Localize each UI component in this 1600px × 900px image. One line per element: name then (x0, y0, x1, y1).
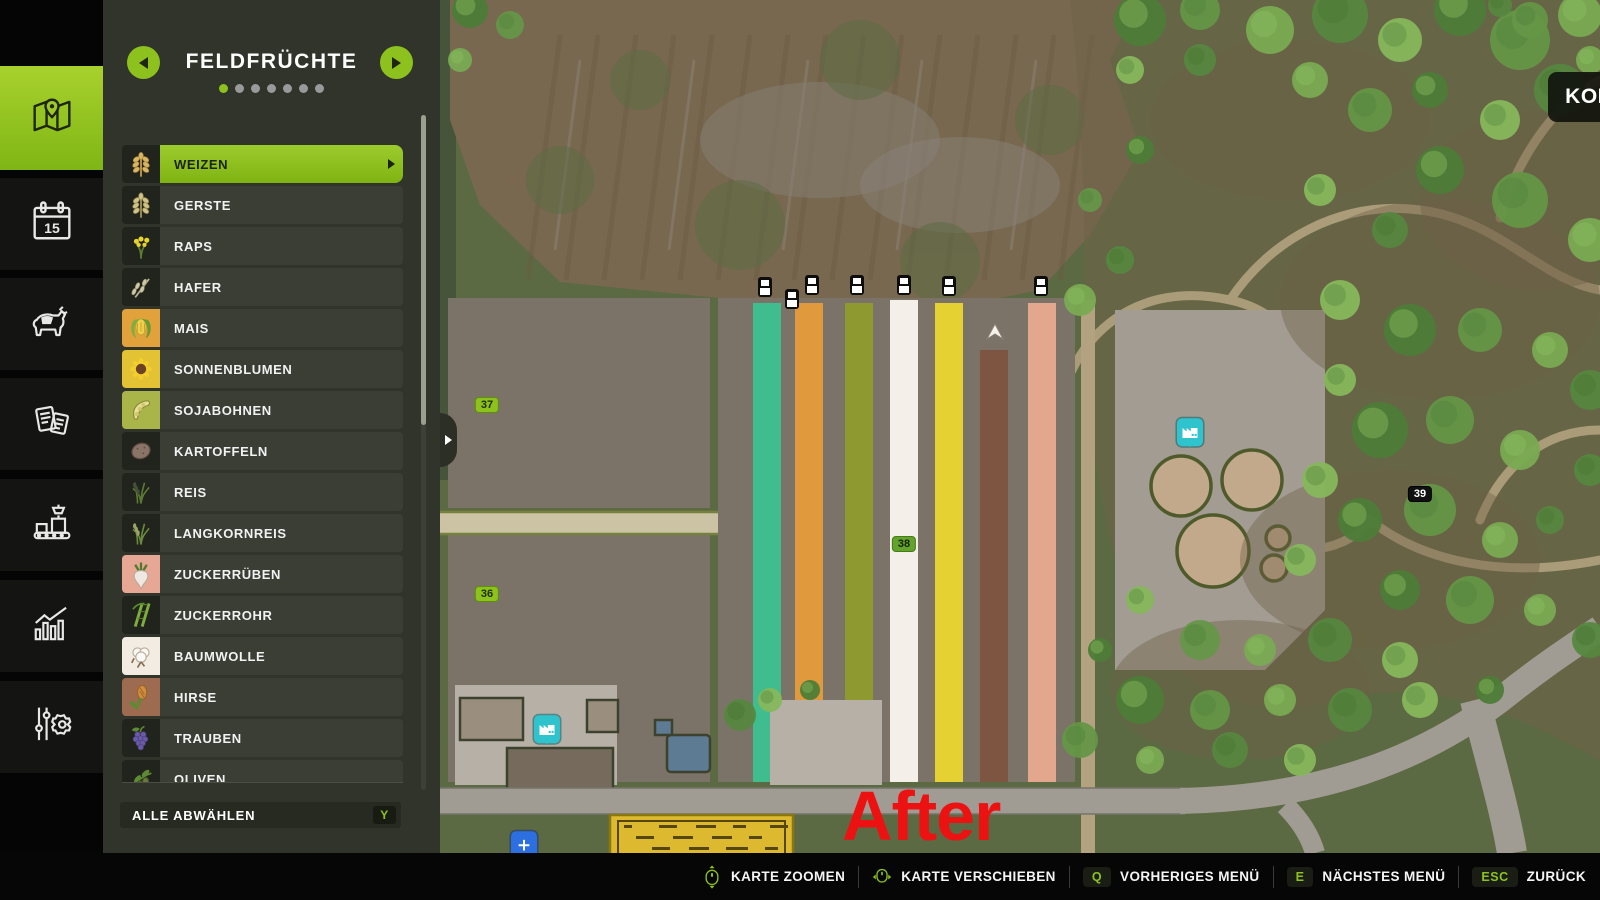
map-point-icon[interactable] (511, 831, 537, 853)
crop-item-hirse[interactable]: HIRSE (122, 678, 403, 716)
vehicle-marker (758, 277, 772, 297)
production-point-icon[interactable] (534, 715, 560, 743)
crop-item-label: ZUCKERROHR (160, 596, 403, 634)
chevron-right-icon (445, 435, 452, 445)
crop-item-label: ZUCKERRÜBEN (160, 555, 403, 593)
potato-icon (122, 432, 160, 470)
page-dot (251, 84, 260, 93)
vehicle-marker (805, 275, 819, 295)
oat-icon (122, 268, 160, 306)
crop-item-label: HIRSE (160, 678, 403, 716)
page-dot (235, 84, 244, 93)
production-icon (26, 497, 78, 554)
after-annotation: After (842, 781, 1000, 851)
soybean-icon (122, 391, 160, 429)
crop-item-label: REIS (160, 473, 403, 511)
page-dot (283, 84, 292, 93)
crop-item-oliven[interactable]: OLIVEN (122, 760, 403, 783)
map-canvas[interactable]: KONTOSTAND: 1.000.000 € 37363839 (440, 0, 1600, 853)
crop-item-label: SOJABOHNEN (160, 391, 403, 429)
deselect-all-label: ALLE ABWÄHLEN (132, 808, 255, 823)
crop-item-reis[interactable]: REIS (122, 473, 403, 511)
divider (1069, 866, 1070, 888)
olive-icon (122, 760, 160, 783)
crop-item-label: OLIVEN (160, 760, 403, 783)
key-hint-q: Q (1083, 867, 1111, 887)
hotbar-item-label: ZURÜCK (1527, 869, 1586, 884)
crop-item-baumwolle[interactable]: BAUMWOLLE (122, 637, 403, 675)
crop-item-zuckerr-ben[interactable]: ZUCKERRÜBEN (122, 555, 403, 593)
crop-item-raps[interactable]: RAPS (122, 227, 403, 265)
sidebar-item-animals[interactable] (0, 278, 103, 370)
crop-item-label: LANGKORNREIS (160, 514, 403, 552)
production-point-icon[interactable] (1177, 418, 1203, 446)
scrollbar-track[interactable] (421, 115, 426, 790)
crop-item-label: KARTOFFELN (160, 432, 403, 470)
canola-icon (122, 227, 160, 265)
hotbar-item-label: KARTE VERSCHIEBEN (901, 869, 1056, 884)
crop-item-sonnenblumen[interactable]: SONNENBLUMEN (122, 350, 403, 388)
divider (1458, 866, 1459, 888)
sidebar-item-map[interactable] (0, 66, 103, 170)
sidebar-item-settings[interactable] (0, 681, 103, 773)
crop-item-label: RAPS (160, 227, 403, 265)
game-screen: KONTOSTAND: 1.000.000 € 37363839 After 1… (0, 0, 1600, 900)
mouse-scroll-icon (702, 864, 722, 890)
page-dot (299, 84, 308, 93)
sidebar-item-statistics[interactable] (0, 580, 103, 672)
key-hint-esc: ESC (1472, 867, 1517, 887)
hotbar-item-karte-zoomen[interactable]: KARTE ZOOMEN (702, 864, 845, 890)
hotbar-item-karte-verschieben[interactable]: KARTE VERSCHIEBEN (872, 864, 1056, 890)
vehicle-marker (942, 276, 956, 296)
hotbar-item-n-chstes-men-[interactable]: ENÄCHSTES MENÜ (1287, 867, 1446, 887)
field-number-badge[interactable]: 39 (1408, 486, 1432, 502)
calendar-icon: 15 (26, 196, 78, 253)
animals-icon (26, 296, 78, 353)
svg-text:15: 15 (44, 219, 60, 235)
settings-icon (26, 699, 78, 756)
crop-item-hafer[interactable]: HAFER (122, 268, 403, 306)
cotton-icon (122, 637, 160, 675)
page-dot (219, 84, 228, 93)
wheat-icon (122, 145, 160, 183)
hotbar-item-label: KARTE ZOOMEN (731, 869, 845, 884)
sidebar-item-contracts[interactable] (0, 378, 103, 470)
crop-item-langkornreis[interactable]: LANGKORNREIS (122, 514, 403, 552)
panel-title: FELDFRÜCHTE (103, 50, 440, 74)
divider (858, 866, 859, 888)
crop-item-mais[interactable]: MAIS (122, 309, 403, 347)
crop-item-label: BAUMWOLLE (160, 637, 403, 675)
field-number-badge[interactable]: 36 (475, 586, 499, 602)
hotbar-item-label: NÄCHSTES MENÜ (1322, 869, 1445, 884)
key-hint-e: E (1287, 867, 1314, 887)
crop-item-zuckerrohr[interactable]: ZUCKERROHR (122, 596, 403, 634)
control-hints-bar: KARTE ZOOMENKARTE VERSCHIEBENQVORHERIGES… (0, 853, 1600, 900)
hotbar-item-zur-ck[interactable]: ESCZURÜCK (1472, 867, 1586, 887)
balance-label: KONTOSTAND: (1565, 85, 1600, 109)
deselect-all-button[interactable]: ALLE ABWÄHLEN Y (120, 802, 401, 828)
main-menu-sidebar: 15 (0, 0, 103, 853)
crop-item-trauben[interactable]: TRAUBEN (122, 719, 403, 757)
crop-item-sojabohnen[interactable]: SOJABOHNEN (122, 391, 403, 429)
chevron-right-icon (388, 159, 395, 169)
mouse-drag-icon (872, 864, 892, 890)
divider (1273, 866, 1274, 888)
page-dots (103, 84, 440, 93)
key-hint-y: Y (373, 806, 396, 824)
map-icon (26, 90, 78, 147)
crop-item-gerste[interactable]: GERSTE (122, 186, 403, 224)
balance-badge: KONTOSTAND: 1.000.000 € (1548, 72, 1600, 122)
grapes-icon (122, 719, 160, 757)
statistics-icon (26, 598, 78, 655)
hotbar-item-vorheriges-men-[interactable]: QVORHERIGES MENÜ (1083, 867, 1260, 887)
sugar-beet-icon (122, 555, 160, 593)
crops-panel: FELDFRÜCHTE WEIZENGERSTERAPSHAFERMAISSON… (103, 0, 440, 853)
scrollbar-thumb[interactable] (421, 115, 426, 425)
crop-item-label: HAFER (160, 268, 403, 306)
barley-icon (122, 186, 160, 224)
vehicle-marker (1034, 276, 1048, 296)
contracts-icon (26, 396, 78, 453)
crop-item-kartoffeln[interactable]: KARTOFFELN (122, 432, 403, 470)
field-number-badge[interactable]: 38 (892, 536, 916, 552)
crop-item-label: TRAUBEN (160, 719, 403, 757)
vehicle-marker (897, 275, 911, 295)
millet-icon (122, 678, 160, 716)
sidebar-item-production[interactable] (0, 479, 103, 571)
field-number-badge[interactable]: 37 (475, 397, 499, 413)
long-grain-rice-icon (122, 514, 160, 552)
map-artwork (440, 0, 1600, 853)
corn-icon (122, 309, 160, 347)
crop-item-label: MAIS (160, 309, 403, 347)
sunflower-icon (122, 350, 160, 388)
page-dot (267, 84, 276, 93)
page-dot (315, 84, 324, 93)
panel-collapse-tab[interactable] (440, 413, 457, 467)
crop-list: WEIZENGERSTERAPSHAFERMAISSONNENBLUMENSOJ… (122, 145, 403, 783)
hotbar-item-label: VORHERIGES MENÜ (1120, 869, 1260, 884)
crop-item-label: GERSTE (160, 186, 403, 224)
rice-icon (122, 473, 160, 511)
sidebar-item-calendar[interactable]: 15 (0, 178, 103, 270)
vehicle-marker (785, 289, 799, 309)
sugarcane-icon (122, 596, 160, 634)
crop-item-label: WEIZEN (160, 145, 403, 183)
crop-item-weizen[interactable]: WEIZEN (122, 145, 403, 183)
vehicle-marker (850, 275, 864, 295)
crop-item-label: SONNENBLUMEN (160, 350, 403, 388)
